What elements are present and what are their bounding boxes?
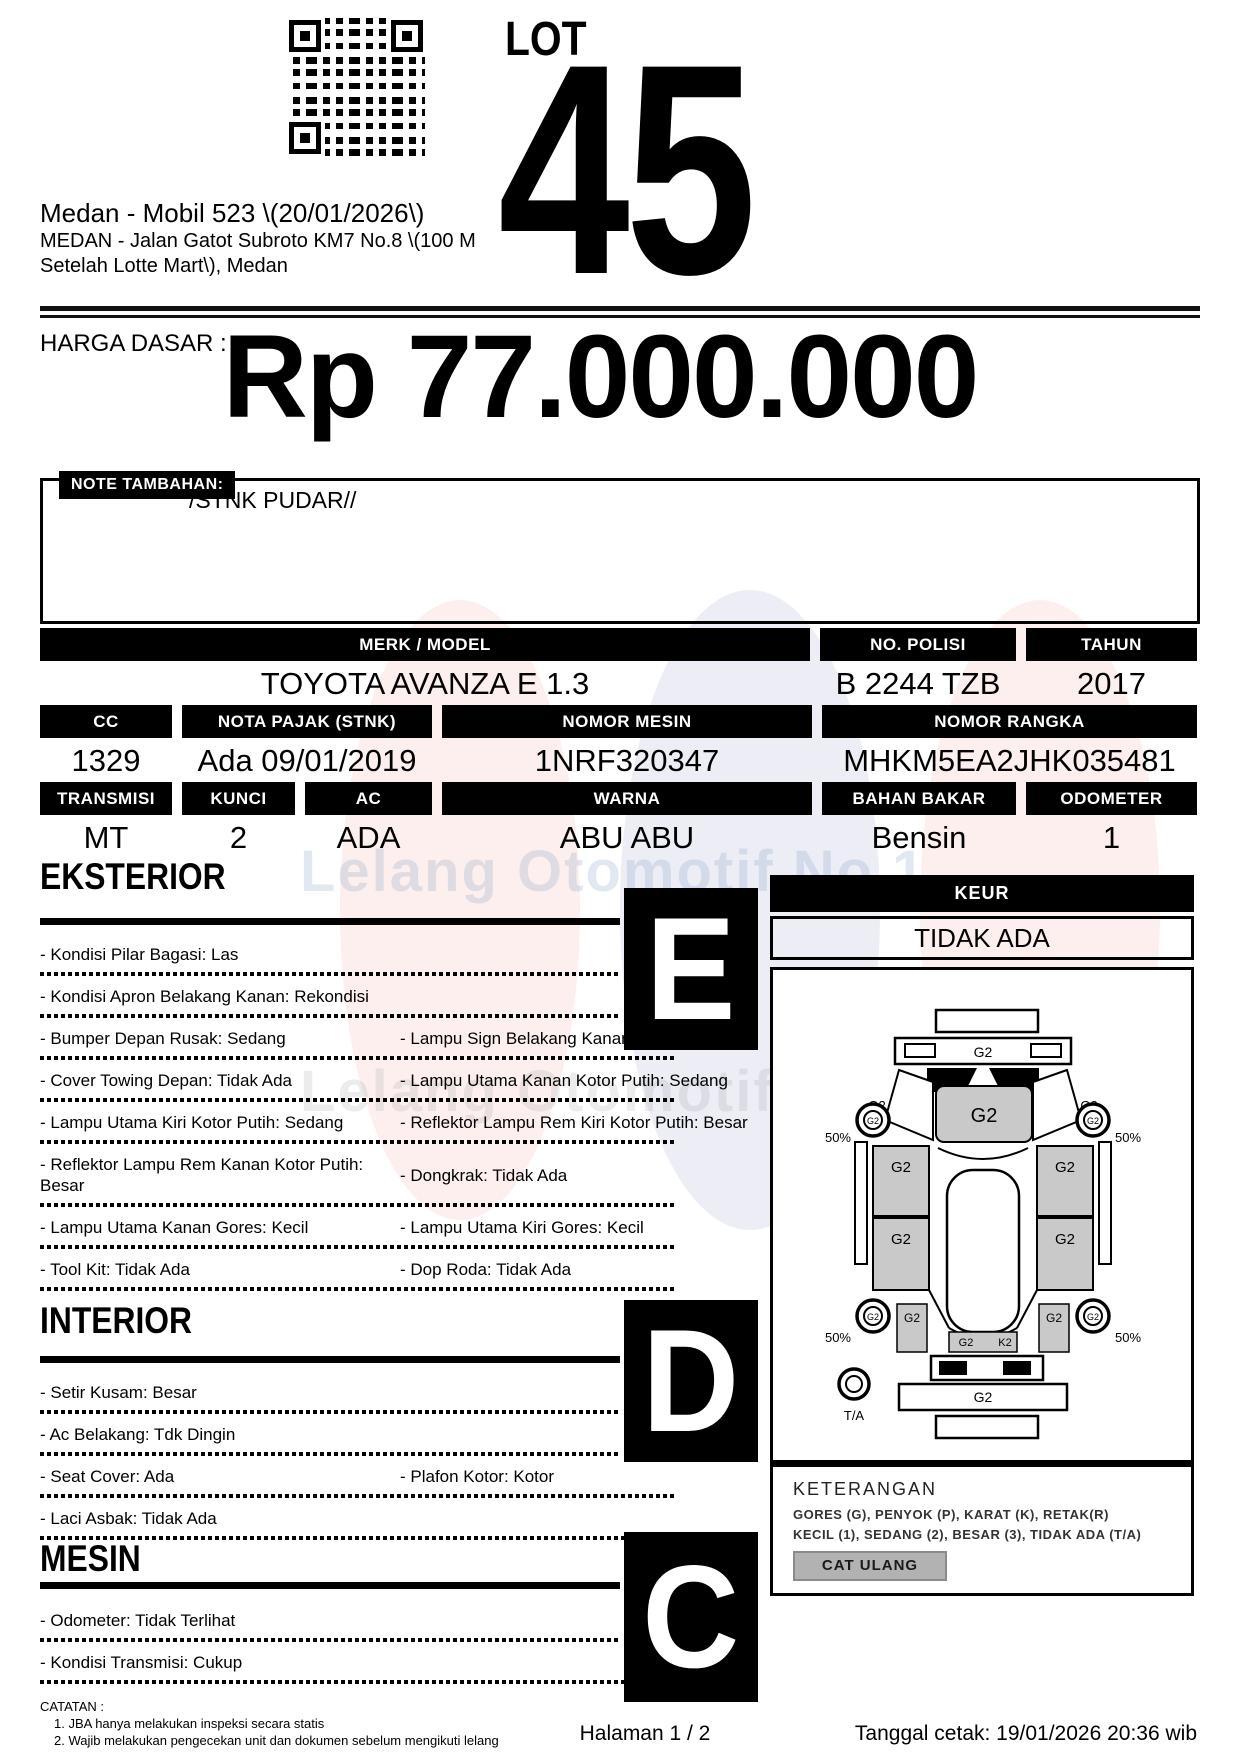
item-text: - Reflektor Lampu Rem Kanan Kotor Putih:… — [40, 1154, 400, 1196]
door-left-rear — [873, 1146, 929, 1216]
rear-plate — [936, 1010, 1038, 1032]
front-plate — [936, 1416, 1038, 1438]
door-left-front — [873, 1218, 929, 1290]
qr-finder-icon — [289, 122, 321, 154]
diagram-label: G2 — [867, 1312, 879, 1322]
spare-tire: T/A — [839, 1369, 869, 1423]
item-text: - Odometer: Tidak Terlihat — [40, 1610, 235, 1631]
spec-header-nomor-rangka: NOMOR RANGKA — [822, 705, 1197, 738]
sill-left — [855, 1142, 867, 1264]
section-title-interior: INTERIOR — [40, 1300, 192, 1342]
spare-tire-label: T/A — [844, 1408, 865, 1423]
keterangan-line2: KECIL (1), SEDANG (2), BESAR (3), TIDAK … — [793, 1527, 1141, 1542]
item-text: - Dongkrak: Tidak Ada — [400, 1165, 780, 1186]
item-text: - Kondisi Pilar Bagasi: Las — [40, 944, 238, 965]
base-price-value: Rp 77.000.000 — [40, 316, 1160, 438]
wheel-front-right: G2 — [1077, 1300, 1109, 1332]
catatan-item: 2. Wajib melakukan pengecekan unit dan d… — [54, 1732, 499, 1749]
keur-value: TIDAK ADA — [770, 916, 1194, 960]
item-text: - Tool Kit: Tidak Ada — [40, 1259, 400, 1280]
spec-value-no-polisi: B 2244 TZB — [820, 666, 1016, 702]
qr-finder-icon — [289, 20, 321, 52]
diagram-label: G2 — [1087, 1116, 1099, 1126]
section-title-eksterior: EKSTERIOR — [40, 856, 226, 898]
rear-lamp-left — [905, 1044, 935, 1057]
item-text: - Dop Roda: Tidak Ada — [400, 1259, 780, 1280]
grade-letter: D — [642, 1297, 739, 1465]
car-top-view: G2 G2 G2 G2 G2 G2 G2 G2 — [773, 970, 1191, 1460]
grade-badge-eksterior: E — [624, 888, 758, 1050]
list-item: - Reflektor Lampu Rem Kanan Kotor Putih:… — [40, 1144, 780, 1207]
front-grille-left — [939, 1361, 967, 1375]
rear-lamp-right — [1031, 1044, 1061, 1057]
tire-tread-label: 50% — [1115, 1130, 1141, 1145]
spec-header-bahan-bakar: BAHAN BAKAR — [822, 782, 1016, 815]
spec-header-kunci: KUNCI — [182, 782, 295, 815]
keur-header: KEUR — [770, 875, 1194, 912]
wheel-rear-right: G2 — [1077, 1104, 1109, 1136]
list-item: - Cover Towing Depan: Tidak Ada- Lampu U… — [40, 1060, 780, 1102]
spec-header-nomor-mesin: NOMOR MESIN — [442, 705, 812, 738]
spec-value-nomor-mesin: 1NRF320347 — [442, 743, 812, 779]
item-text: - Plafon Kotor: Kotor — [400, 1466, 780, 1487]
diagram-label: G2 — [1046, 1311, 1062, 1325]
item-text: - Laci Asbak: Tidak Ada — [40, 1508, 217, 1529]
spec-value-bahan-bakar: Bensin — [822, 820, 1016, 856]
door-right-rear — [1037, 1146, 1093, 1216]
catatan-title: CATATAN : — [40, 1698, 499, 1715]
keterangan-box: KETERANGAN GORES (G), PENYOK (P), KARAT … — [770, 1463, 1194, 1596]
qr-code — [285, 16, 427, 158]
auction-title: Medan - Mobil 523 \(20/01/2026\) — [40, 198, 424, 229]
diagram-label: G2 — [974, 1389, 993, 1405]
auction-address-line2: Setelah Lotte Mart\), Medan — [40, 255, 288, 278]
note-text: /STNK PUDAR// — [189, 487, 356, 514]
qr-finder-icon — [391, 20, 423, 52]
item-text: - Cover Towing Depan: Tidak Ada — [40, 1070, 400, 1091]
lot-number: 45 — [498, 42, 752, 297]
grade-letter: C — [642, 1533, 739, 1701]
diagram-label: G2 — [1055, 1231, 1075, 1248]
tire-tread-label: 50% — [825, 1330, 851, 1345]
section-underline — [40, 1356, 620, 1363]
front-grille-right — [1003, 1361, 1031, 1375]
list-item: - Tool Kit: Tidak Ada- Dop Roda: Tidak A… — [40, 1249, 780, 1291]
diagram-label: G2 — [1055, 1159, 1075, 1176]
catatan-item: 1. JBA hanya melakukan inspeksi secara s… — [54, 1715, 499, 1732]
wheel-rear-left: G2 — [857, 1104, 889, 1136]
rear-window-line — [938, 1148, 1028, 1159]
item-text: - Ac Belakang: Tdk Dingin — [40, 1424, 235, 1445]
repaint-swatch: CAT ULANG — [793, 1551, 947, 1581]
auction-address-line1: MEDAN - Jalan Gatot Subroto KM7 No.8 \(1… — [40, 230, 476, 253]
item-text: - Lampu Utama Kiri Gores: Kecil — [400, 1217, 780, 1238]
spec-header-tahun: TAHUN — [1026, 628, 1197, 661]
grade-badge-interior: D — [624, 1300, 758, 1462]
section-underline — [40, 918, 620, 925]
spec-header-cc: CC — [40, 705, 172, 738]
print-date: Tanggal cetak: 19/01/2026 20:36 wib — [797, 1722, 1197, 1746]
item-text: - Reflektor Lampu Rem Kiri Kotor Putih: … — [400, 1112, 780, 1133]
tire-tread-label: 50% — [825, 1130, 851, 1145]
page-number: Halaman 1 / 2 — [525, 1722, 765, 1746]
diagram-label: G2 — [971, 1105, 998, 1127]
item-text: - Lampu Utama Kanan Kotor Putih: Sedang — [400, 1070, 780, 1091]
list-item: - Lampu Utama Kiri Kotor Putih: Sedang- … — [40, 1102, 780, 1144]
spec-value-transmisi: MT — [40, 820, 172, 856]
diagram-label: G2 — [867, 1116, 879, 1126]
item-text: - Setir Kusam: Besar — [40, 1382, 197, 1403]
tire-tread-label: 50% — [1115, 1330, 1141, 1345]
spec-value-ac: ADA — [305, 820, 432, 856]
dotted-divider — [40, 1680, 675, 1684]
spec-header-warna: WARNA — [442, 782, 812, 815]
door-right-front — [1037, 1218, 1093, 1290]
quarter-window-left — [885, 1070, 933, 1140]
keterangan-line1: GORES (G), PENYOK (P), KARAT (K), RETAK(… — [793, 1507, 1109, 1522]
item-text: - Lampu Utama Kiri Kotor Putih: Sedang — [40, 1112, 400, 1133]
spec-value-nota-pajak: Ada 09/01/2019 — [182, 743, 432, 779]
auction-lot-sheet: Lelang Otomotif No.1 Lelang Otomotif No.… — [0, 0, 1240, 1754]
spec-value-odometer: 1 — [1026, 820, 1197, 856]
dotted-divider — [40, 1287, 675, 1291]
spec-value-kunci: 2 — [182, 820, 295, 856]
spec-value-merk-model: TOYOTA AVANZA E 1.3 — [40, 666, 810, 702]
diagram-label: G2 — [891, 1231, 911, 1248]
spec-header-transmisi: TRANSMISI — [40, 782, 172, 815]
list-item: - Lampu Utama Kanan Gores: Kecil- Lampu … — [40, 1207, 780, 1249]
grade-badge-mesin: C — [624, 1532, 758, 1702]
spec-value-tahun: 2017 — [1026, 666, 1197, 702]
spec-value-nomor-rangka: MHKM5EA2JHK035481 — [822, 743, 1197, 779]
spec-header-ac: AC — [305, 782, 432, 815]
catatan-notes: CATATAN : 1. JBA hanya melakukan inspeks… — [40, 1698, 499, 1749]
car-damage-diagram: G2 G2 G2 G2 G2 G2 G2 G2 — [770, 967, 1194, 1463]
diagram-label: G2 — [1087, 1312, 1099, 1322]
diagram-label-hood: K2 — [998, 1337, 1011, 1349]
quarter-window-right — [1033, 1070, 1081, 1140]
keterangan-title: KETERANGAN — [793, 1479, 937, 1500]
diagram-label: G2 — [974, 1044, 993, 1060]
diagram-label: G2 — [904, 1311, 920, 1325]
grade-letter: E — [646, 885, 736, 1053]
item-text: - Bumper Depan Rusak: Sedang — [40, 1028, 400, 1049]
spec-header-no-polisi: NO. POLISI — [820, 628, 1016, 661]
spec-value-warna: ABU ABU — [442, 820, 812, 856]
item-text: - Lampu Utama Kanan Gores: Kecil — [40, 1217, 400, 1238]
item-text: - Seat Cover: Ada — [40, 1466, 400, 1487]
wheel-front-left: G2 — [857, 1300, 889, 1332]
section-underline — [40, 1582, 620, 1589]
item-text: - Kondisi Transmisi: Cukup — [40, 1652, 242, 1673]
item-text: - Kondisi Apron Belakang Kanan: Rekondis… — [40, 986, 369, 1007]
diagram-label: G2 — [959, 1337, 974, 1349]
spec-header-merk-model: MERK / MODEL — [40, 628, 810, 661]
spec-header-nota-pajak: NOTA PAJAK (STNK) — [182, 705, 432, 738]
section-title-mesin: MESIN — [40, 1538, 141, 1580]
roof-panel — [947, 1170, 1019, 1332]
note-box: NOTE TAMBAHAN: /STNK PUDAR// — [40, 478, 1200, 624]
spec-header-odometer: ODOMETER — [1026, 782, 1197, 815]
diagram-label: G2 — [891, 1159, 911, 1176]
spec-value-cc: 1329 — [40, 743, 172, 779]
sill-right — [1099, 1142, 1111, 1264]
